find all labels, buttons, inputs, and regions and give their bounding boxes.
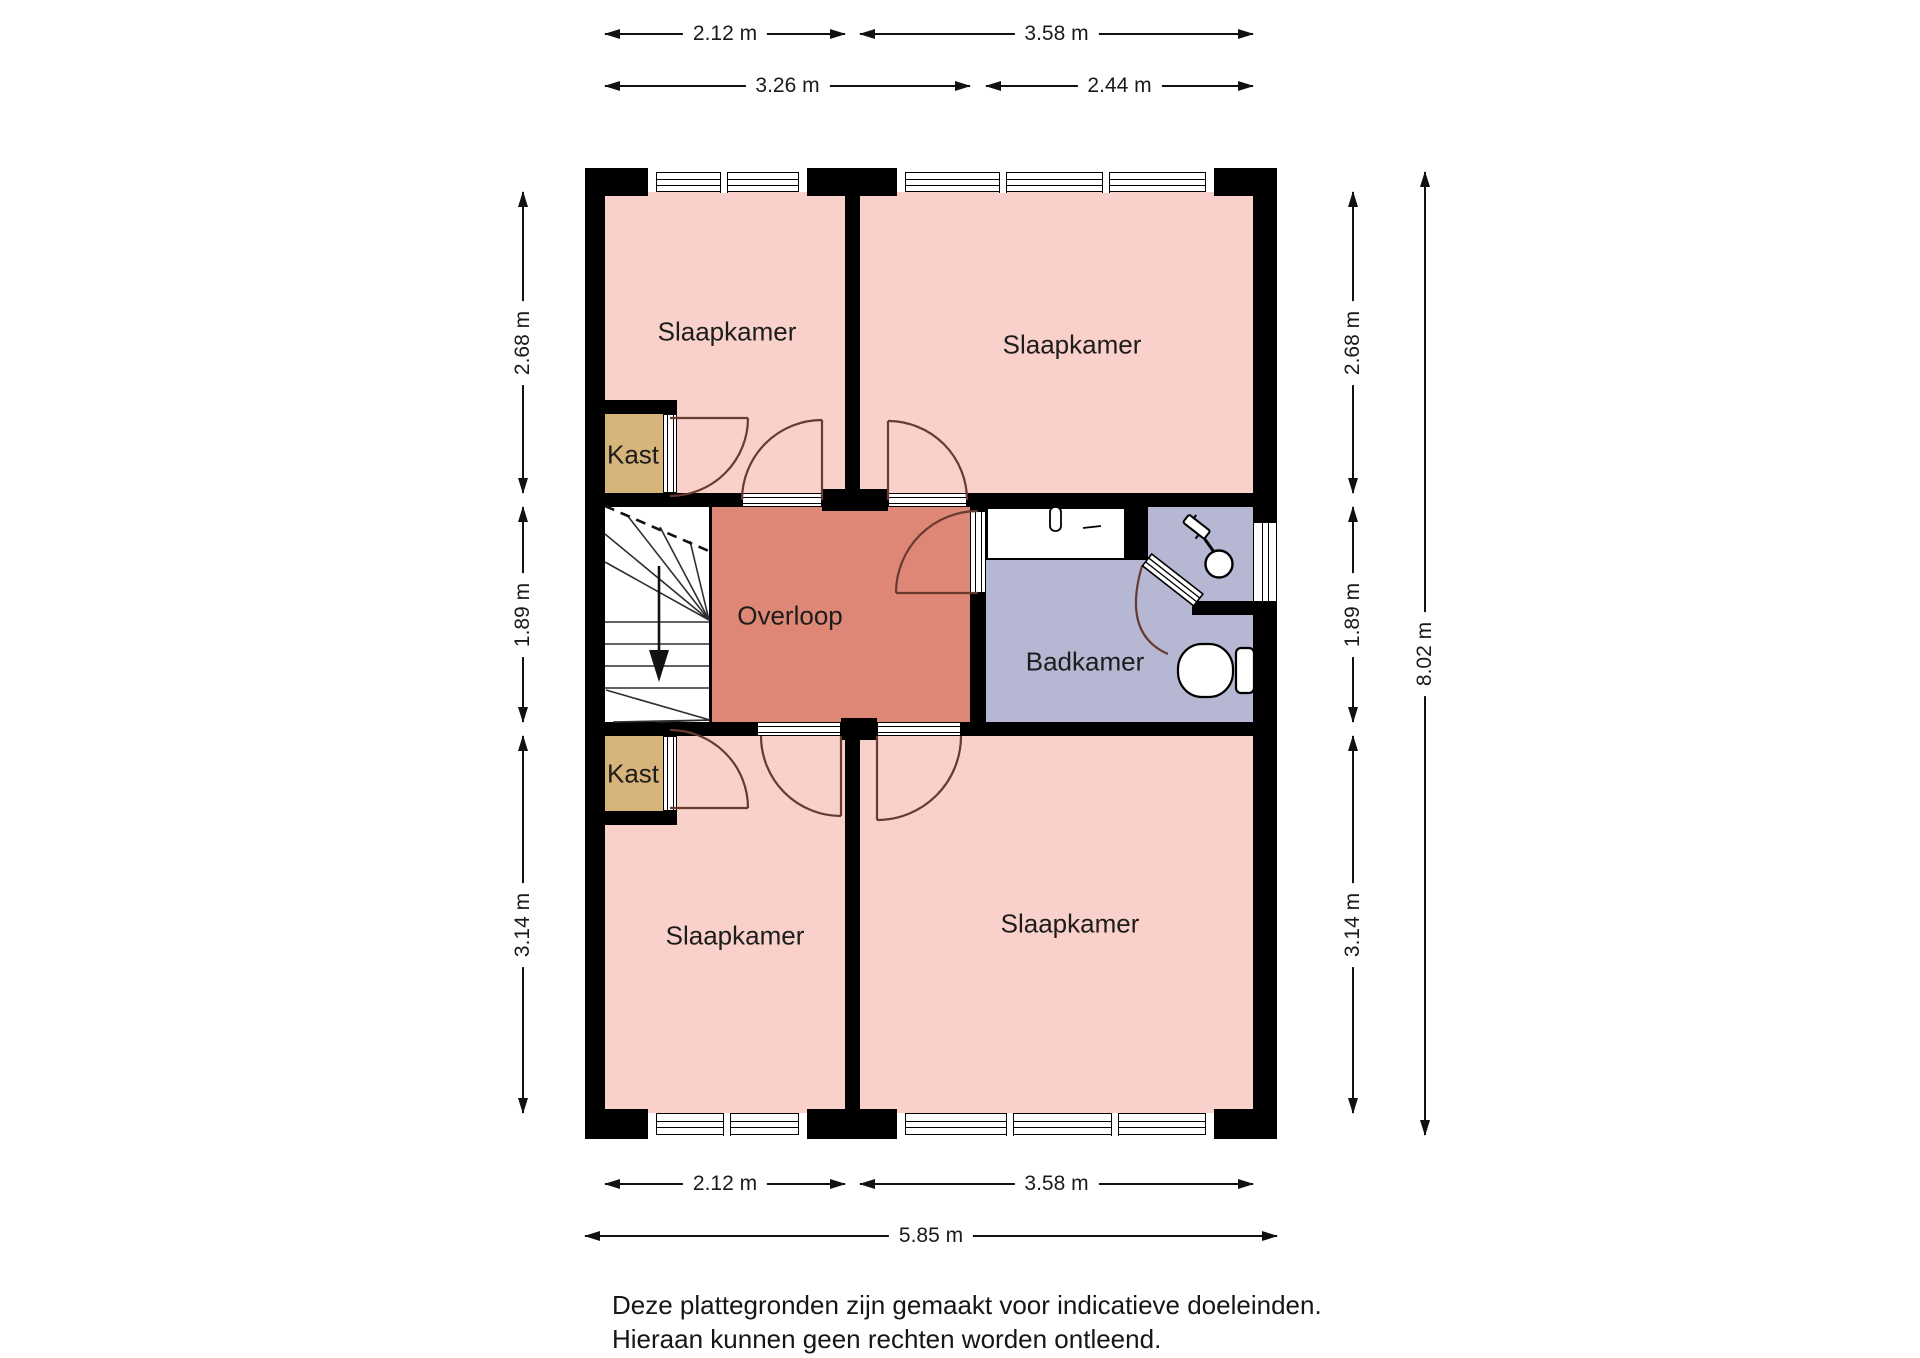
room-label-bedroom-top-right: Slaapkamer: [1003, 330, 1142, 361]
window-mullion: [999, 172, 1007, 193]
disclaimer-text: Deze plattegronden zijn gemaakt voor ind…: [612, 1288, 1322, 1356]
arrow-left-icon: [604, 1179, 620, 1189]
wall-shower-south: [1192, 601, 1253, 615]
arrow-up-icon: [518, 191, 528, 207]
dimension-left-mid: 1.89 m: [522, 507, 524, 722]
arrow-left-icon: [584, 1231, 600, 1241]
window-bottom-right: [905, 1113, 1206, 1135]
wall-outer-left: [585, 172, 605, 1135]
room-label-bedroom-bottom-left: Slaapkamer: [666, 921, 805, 952]
wall-block-bottom-tee: [807, 1109, 897, 1139]
door-opening-bedroom-bottom-left: [757, 722, 841, 736]
wall-bathroom-west: [970, 593, 986, 722]
arrow-up-icon: [518, 506, 528, 522]
stairwell: [605, 507, 711, 722]
room-label-closet-bottom: Kast: [607, 759, 659, 790]
arrow-down-icon: [518, 1098, 528, 1114]
room-label-closet-top: Kast: [607, 440, 659, 471]
arrow-down-icon: [518, 707, 528, 723]
wall-divider-bottom-bedrooms: [845, 736, 860, 1113]
arrow-right-icon: [1238, 81, 1254, 91]
dimension-top-row2-right: 2.44 m: [986, 85, 1253, 87]
arrow-left-icon: [859, 1179, 875, 1189]
room-label-bedroom-top-left: Slaapkamer: [658, 317, 797, 348]
dimension-label: 3.14 m: [511, 882, 535, 966]
arrow-down-icon: [1348, 707, 1358, 723]
dimension-label: 5.85 m: [889, 1224, 973, 1248]
dimension-right-top: 2.68 m: [1352, 192, 1354, 493]
arrow-right-icon: [1238, 29, 1254, 39]
wall-block-bottom-left-corner: [585, 1109, 648, 1139]
disclaimer-line-2: Hieraan kunnen geen rechten worden ontle…: [612, 1322, 1322, 1356]
wall-landing-north-a: [605, 493, 742, 507]
dimension-top-row2-left: 3.26 m: [605, 85, 970, 87]
wall-landing-south-b: [961, 722, 1253, 736]
wall-landing-south-a: [605, 722, 757, 736]
arrow-down-icon: [1348, 1098, 1358, 1114]
door-opening-bedroom-top-right: [888, 493, 967, 507]
room-label-bathroom: Badkamer: [1026, 647, 1145, 678]
dimension-label: 3.58 m: [1014, 22, 1098, 46]
floorplan-page: Slaapkamer Slaapkamer Slaapkamer Slaapka…: [0, 0, 1920, 1358]
dimension-label: 8.02 m: [1413, 611, 1437, 695]
window-mullion: [1111, 1113, 1119, 1136]
window-gap: [648, 172, 656, 192]
room-label-landing: Overloop: [737, 601, 843, 632]
window-gap: [1206, 1113, 1214, 1135]
window-mullion: [1006, 1113, 1014, 1136]
dimension-label: 1.89 m: [1341, 572, 1365, 656]
arrow-right-icon: [830, 29, 846, 39]
dimension-left-bottom: 3.14 m: [522, 736, 524, 1113]
arrow-right-icon: [1262, 1231, 1278, 1241]
wall-landing-north-tee: [822, 489, 888, 511]
dimension-label: 2.68 m: [1341, 300, 1365, 384]
window-mullion: [720, 172, 728, 193]
arrow-up-icon: [1420, 171, 1430, 187]
arrow-left-icon: [604, 29, 620, 39]
door-opening-closet-bottom: [663, 736, 677, 811]
arrow-left-icon: [604, 81, 620, 91]
arrow-up-icon: [1348, 735, 1358, 751]
dimension-bottom-row1-right: 3.58 m: [860, 1183, 1253, 1185]
wall-landing-south-tee: [841, 718, 877, 740]
dimension-label: 3.14 m: [1341, 882, 1365, 966]
door-opening-bedroom-bottom-right: [877, 722, 961, 736]
bathroom-sink-vanity: [986, 507, 1126, 560]
stair-edge-line: [709, 507, 712, 722]
arrow-up-icon: [518, 735, 528, 751]
dimension-bottom-row1-left: 2.12 m: [605, 1183, 845, 1185]
wall-block-bottom-right-corner: [1214, 1109, 1277, 1139]
dimension-top-row1-left: 2.12 m: [605, 33, 845, 35]
door-opening-bedroom-top-left: [742, 493, 822, 507]
wall-outer-right: [1253, 172, 1277, 1135]
dimension-bottom-total: 5.85 m: [585, 1235, 1277, 1237]
dimension-left-top: 2.68 m: [522, 192, 524, 493]
wall-closet-top: [585, 400, 677, 414]
arrow-right-icon: [830, 1179, 846, 1189]
window-gap: [1206, 172, 1214, 192]
arrow-up-icon: [1348, 506, 1358, 522]
arrow-down-icon: [1420, 1120, 1430, 1136]
window-bathroom: [1253, 522, 1277, 602]
dimension-right-total: 8.02 m: [1424, 172, 1426, 1135]
dimension-label: 3.26 m: [745, 74, 829, 98]
dimension-label: 2.44 m: [1077, 74, 1161, 98]
door-opening-closet-top: [663, 414, 677, 493]
arrow-down-icon: [1348, 478, 1358, 494]
disclaimer-line-1: Deze plattegronden zijn gemaakt voor ind…: [612, 1288, 1322, 1322]
arrow-right-icon: [955, 81, 971, 91]
wall-divider-top-bedrooms: [845, 192, 860, 493]
dimension-right-mid: 1.89 m: [1352, 507, 1354, 722]
window-gap: [799, 172, 807, 192]
window-gap: [897, 1113, 905, 1135]
window-gap: [648, 1113, 656, 1135]
wall-landing-north-b: [967, 493, 1253, 507]
dimension-label: 2.12 m: [683, 1172, 767, 1196]
dimension-label: 3.58 m: [1014, 1172, 1098, 1196]
wall-closet-bottom: [585, 811, 677, 825]
window-gap: [897, 172, 905, 192]
dimension-top-row1-right: 3.58 m: [860, 33, 1253, 35]
wall-block-top-left-corner: [585, 168, 648, 196]
arrow-left-icon: [859, 29, 875, 39]
wall-block-top-right-corner: [1214, 168, 1277, 196]
window-mullion: [1102, 172, 1110, 193]
dimension-label: 2.12 m: [683, 22, 767, 46]
arrow-right-icon: [1238, 1179, 1254, 1189]
room-label-bedroom-bottom-right: Slaapkamer: [1001, 909, 1140, 940]
dimension-label: 2.68 m: [511, 300, 535, 384]
window-mullion: [723, 1113, 731, 1136]
wall-shower-stub: [1126, 507, 1148, 560]
door-opening-bathroom: [970, 511, 986, 593]
arrow-up-icon: [1348, 191, 1358, 207]
window-top-right: [905, 172, 1206, 192]
arrow-down-icon: [518, 478, 528, 494]
arrow-left-icon: [985, 81, 1001, 91]
window-top-left: [656, 172, 799, 192]
window-bottom-left: [656, 1113, 799, 1135]
dimension-right-bottom: 3.14 m: [1352, 736, 1354, 1113]
window-gap: [799, 1113, 807, 1135]
dimension-label: 1.89 m: [511, 572, 535, 656]
